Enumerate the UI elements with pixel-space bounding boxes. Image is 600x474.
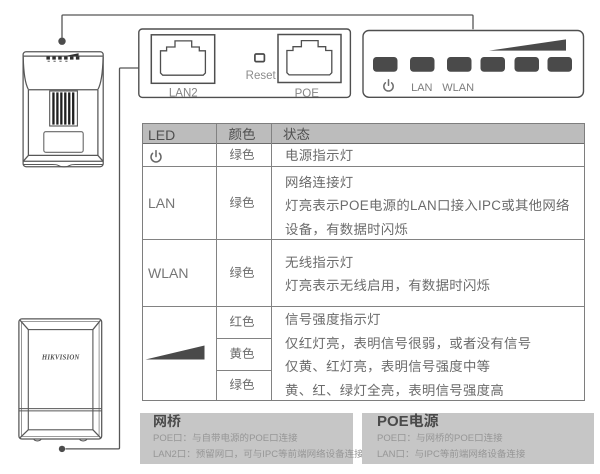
svg-text:Reset: Reset [246, 70, 277, 82]
svg-text:WLAN: WLAN [442, 82, 474, 94]
svg-text:LAN: LAN [411, 82, 432, 94]
svg-text:LAN2: LAN2 [169, 87, 198, 99]
svg-text:POE: POE [295, 88, 320, 100]
svg-text:HIKVISION: HIKVISION [41, 355, 81, 362]
